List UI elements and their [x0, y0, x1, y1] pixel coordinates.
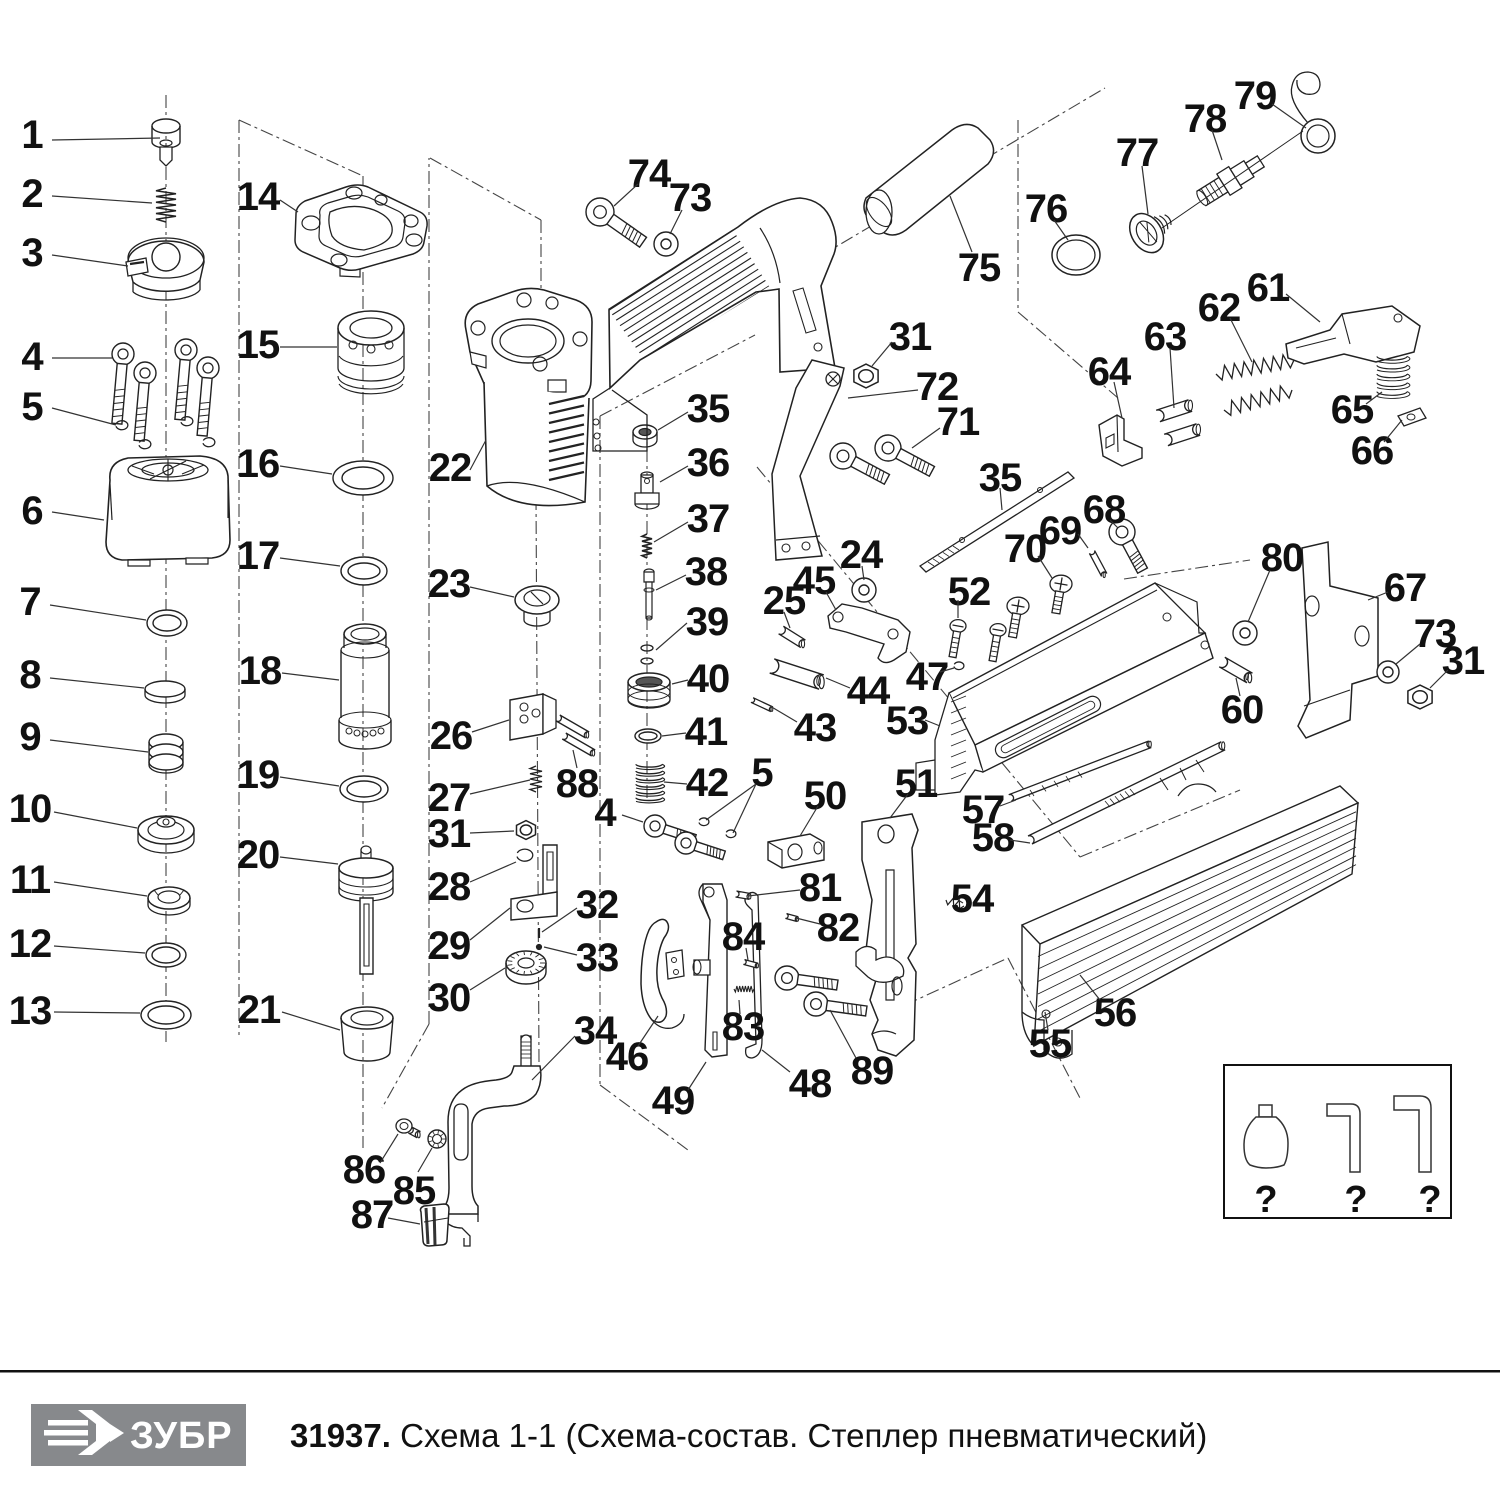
svg-text:39: 39 [686, 600, 729, 644]
svg-text:13: 13 [9, 989, 52, 1033]
svg-text:77: 77 [1116, 131, 1159, 175]
svg-text:31: 31 [428, 812, 471, 856]
svg-text:4: 4 [21, 335, 44, 379]
svg-text:20: 20 [237, 833, 280, 877]
svg-text:75: 75 [958, 246, 1001, 290]
svg-text:44: 44 [847, 669, 891, 713]
svg-text:55: 55 [1029, 1022, 1072, 1066]
svg-text:73: 73 [669, 176, 712, 220]
svg-text:23: 23 [428, 562, 471, 606]
svg-text:32: 32 [576, 883, 619, 927]
svg-text:30: 30 [428, 976, 471, 1020]
svg-text:60: 60 [1221, 688, 1264, 732]
svg-text:87: 87 [351, 1193, 394, 1237]
svg-text:82: 82 [817, 906, 860, 950]
svg-text:70: 70 [1004, 527, 1047, 571]
svg-text:65: 65 [1331, 388, 1374, 432]
svg-text:21: 21 [238, 988, 281, 1032]
svg-text:56: 56 [1094, 991, 1137, 1035]
svg-text:26: 26 [430, 714, 473, 758]
svg-text:52: 52 [948, 570, 991, 614]
svg-text:79: 79 [1234, 74, 1277, 118]
svg-text:80: 80 [1261, 536, 1304, 580]
svg-text:15: 15 [237, 323, 280, 367]
svg-text:85: 85 [393, 1169, 436, 1213]
svg-text:28: 28 [428, 865, 471, 909]
svg-text:37: 37 [687, 497, 730, 541]
svg-text:67: 67 [1384, 566, 1427, 610]
svg-text:54: 54 [951, 877, 995, 921]
svg-text:?: ? [1344, 1179, 1367, 1221]
svg-text:74: 74 [628, 152, 672, 196]
svg-text:62: 62 [1198, 286, 1241, 330]
svg-text:10: 10 [9, 787, 52, 831]
svg-text:43: 43 [794, 706, 837, 750]
svg-text:6: 6 [21, 489, 42, 533]
svg-text:41: 41 [685, 710, 728, 754]
svg-text:17: 17 [237, 534, 280, 578]
svg-text:40: 40 [687, 657, 730, 701]
svg-text:?: ? [1418, 1179, 1441, 1221]
svg-text:25: 25 [763, 579, 806, 623]
svg-text:18: 18 [239, 649, 282, 693]
svg-text:19: 19 [237, 753, 280, 797]
svg-text:58: 58 [972, 816, 1015, 860]
svg-text:66: 66 [1351, 429, 1394, 473]
svg-text:49: 49 [652, 1079, 695, 1123]
svg-text:38: 38 [685, 550, 728, 594]
svg-text:51: 51 [895, 762, 938, 806]
svg-text:61: 61 [1247, 266, 1290, 310]
svg-text:42: 42 [686, 761, 729, 805]
svg-text:2: 2 [21, 172, 42, 216]
svg-text:14: 14 [237, 175, 281, 219]
svg-text:?: ? [1254, 1179, 1277, 1221]
svg-text:33: 33 [576, 936, 619, 980]
svg-text:89: 89 [851, 1049, 894, 1093]
svg-text:29: 29 [428, 924, 471, 968]
svg-text:47: 47 [906, 655, 949, 699]
svg-text:31: 31 [889, 315, 932, 359]
svg-text:88: 88 [556, 762, 599, 806]
svg-text:3: 3 [21, 231, 42, 275]
svg-text:83: 83 [722, 1005, 765, 1049]
svg-text:4: 4 [594, 791, 617, 835]
svg-text:31937. Схема 1-1 (Схема-состав: 31937. Схема 1-1 (Схема-состав. Степлер … [290, 1417, 1207, 1454]
svg-text:16: 16 [237, 442, 280, 486]
svg-text:5: 5 [21, 385, 43, 429]
svg-text:46: 46 [606, 1035, 649, 1079]
svg-text:ЗУБР: ЗУБР [130, 1415, 233, 1457]
svg-text:50: 50 [804, 774, 847, 818]
svg-text:35: 35 [687, 387, 730, 431]
svg-text:81: 81 [799, 866, 842, 910]
svg-text:31: 31 [1442, 639, 1485, 683]
svg-text:7: 7 [19, 580, 40, 624]
svg-text:1: 1 [21, 113, 43, 157]
svg-text:64: 64 [1088, 350, 1132, 394]
svg-text:11: 11 [10, 858, 51, 902]
svg-text:53: 53 [886, 699, 929, 743]
svg-text:86: 86 [343, 1148, 386, 1192]
svg-text:72: 72 [916, 365, 959, 409]
svg-text:12: 12 [9, 922, 52, 966]
svg-text:84: 84 [722, 915, 766, 959]
svg-text:24: 24 [840, 533, 884, 577]
svg-text:8: 8 [19, 653, 41, 697]
svg-text:68: 68 [1083, 488, 1126, 532]
svg-text:22: 22 [429, 446, 472, 490]
svg-text:78: 78 [1184, 97, 1227, 141]
svg-text:76: 76 [1025, 187, 1068, 231]
svg-text:36: 36 [687, 441, 730, 485]
svg-text:5: 5 [751, 751, 773, 795]
svg-text:9: 9 [19, 715, 40, 759]
svg-text:48: 48 [789, 1062, 832, 1106]
svg-text:63: 63 [1144, 315, 1187, 359]
